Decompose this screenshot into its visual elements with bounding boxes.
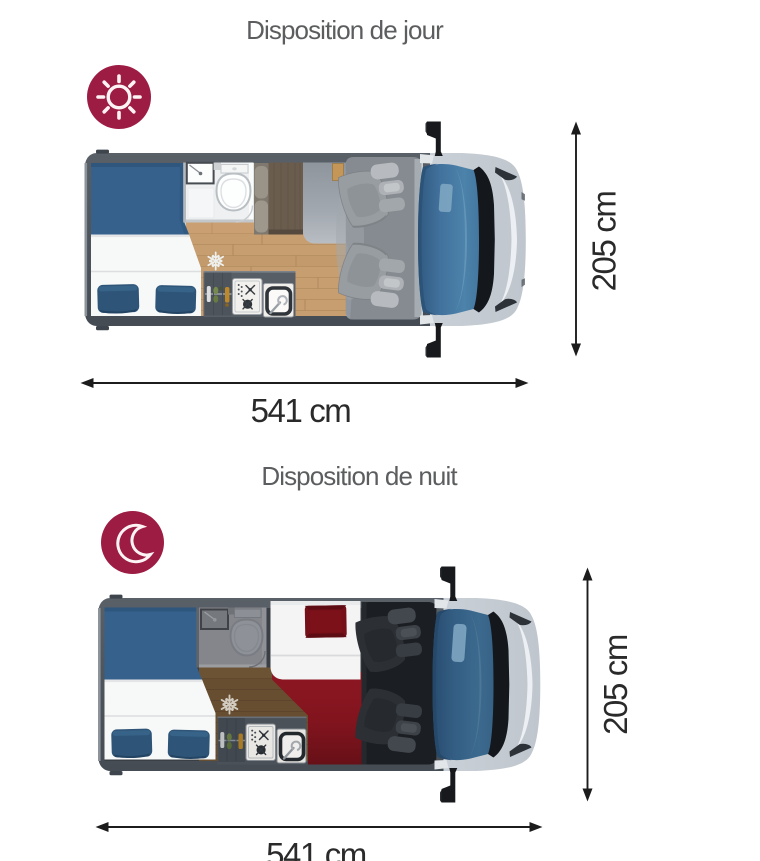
svg-text:541 cm: 541 cm (266, 836, 366, 861)
svg-text:541 cm: 541 cm (251, 392, 351, 429)
svg-text:205 cm: 205 cm (597, 635, 634, 735)
svg-text:Disposition de nuit: Disposition de nuit (261, 461, 458, 491)
svg-text:205 cm: 205 cm (586, 192, 623, 292)
svg-text:Disposition de jour: Disposition de jour (246, 15, 444, 45)
